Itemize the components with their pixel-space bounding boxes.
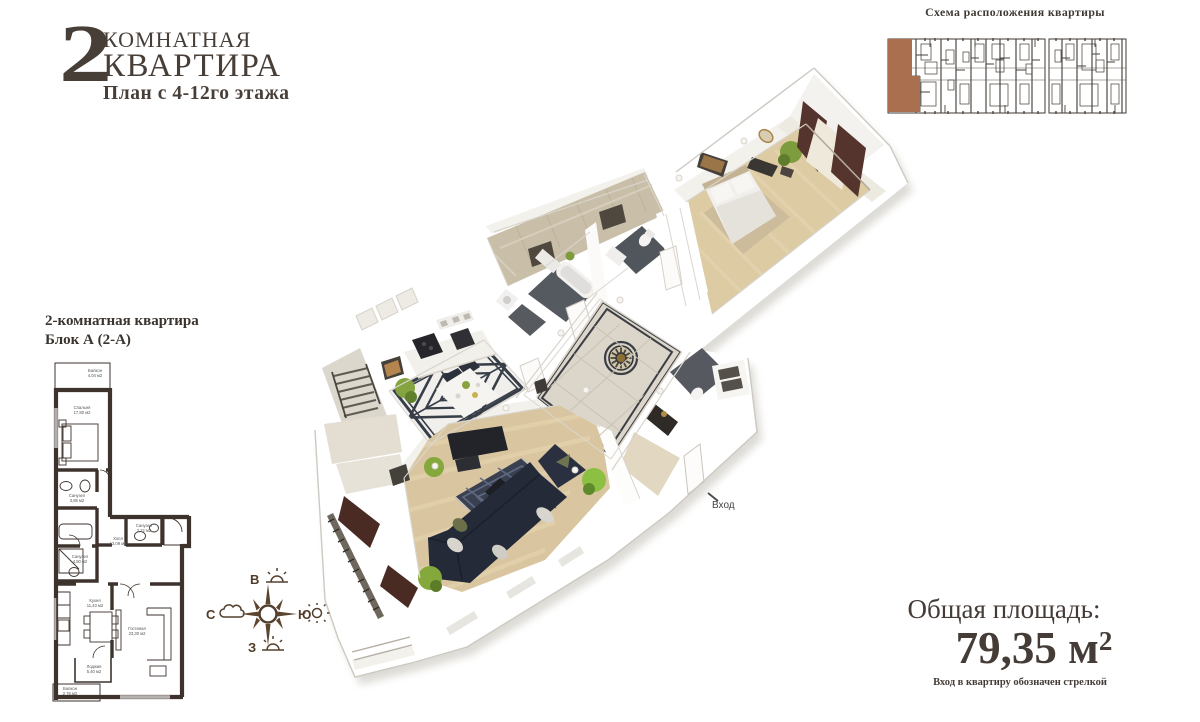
svg-text:11,43 м2: 11,43 м2 bbox=[87, 603, 104, 608]
svg-text:С: С bbox=[206, 607, 216, 622]
svg-text:2,22 м2: 2,22 м2 bbox=[137, 528, 152, 533]
svg-text:23,30 м2: 23,30 м2 bbox=[129, 631, 147, 636]
svg-text:4,04 м2: 4,04 м2 bbox=[88, 373, 103, 378]
svg-text:2,76 м2: 2,76 м2 bbox=[63, 691, 78, 696]
svg-text:В: В bbox=[250, 572, 259, 587]
svg-text:13,09 м2: 13,09 м2 bbox=[110, 541, 128, 546]
svg-text:З: З bbox=[248, 640, 256, 655]
svg-text:5,40 м2: 5,40 м2 bbox=[87, 669, 102, 674]
svg-text:3,85 м2: 3,85 м2 bbox=[70, 498, 85, 503]
svg-text:4,50 м2: 4,50 м2 bbox=[73, 559, 88, 564]
svg-text:17,80 м2: 17,80 м2 bbox=[74, 410, 92, 415]
